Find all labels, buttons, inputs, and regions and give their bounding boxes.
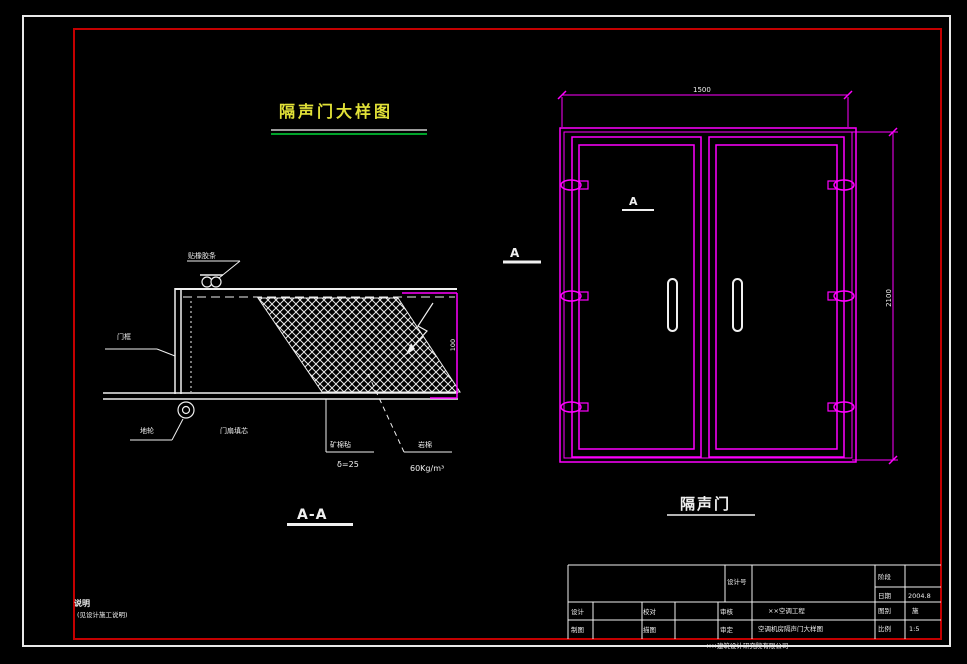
width-dimension: 1500 — [558, 86, 852, 127]
trace-label: 描图 — [643, 625, 656, 634]
height-dim-text: 2100 — [885, 289, 893, 307]
section-marker-leaf: A — [629, 195, 638, 208]
project-line2: 空调机房隔声门大样图 — [758, 624, 823, 633]
approve-label: 审定 — [720, 625, 734, 634]
door-elevation: 1500 2100 A A 隔声门 — [503, 86, 898, 515]
wheel-label-leader — [172, 419, 183, 440]
door-handle-left-icon — [668, 279, 677, 331]
infill-density-label: 60Kg/m³ — [410, 464, 444, 473]
outer-white-border — [23, 16, 950, 646]
leaf-label: 门扇填芯 — [220, 426, 248, 435]
floor-wheel-inner-icon — [183, 407, 190, 414]
type-label: 图别 — [878, 606, 891, 615]
sheet-frame — [23, 16, 950, 646]
drawing-title: 隔声门大样图 — [271, 102, 427, 134]
date-label: 日期 — [878, 592, 892, 600]
design-label: 设计 — [571, 607, 585, 616]
cad-viewport: 隔声门大样图 — [0, 0, 967, 664]
elevation-caption: 隔声门 — [680, 495, 731, 513]
absorber-thickness-label: δ=25 — [337, 460, 359, 469]
scale-value: 1:5 — [909, 625, 919, 633]
thickness-dim-text: 100 — [449, 339, 457, 351]
section-caption: A-A — [297, 507, 327, 523]
page-title: 隔声门大样图 — [279, 102, 393, 121]
notes-heading: 说明 — [74, 598, 90, 608]
frame-label-leader — [157, 349, 175, 356]
review-label: 审核 — [720, 607, 734, 616]
right-leaf-inner — [716, 145, 837, 449]
notes-body: (见设计施工说明) — [77, 610, 128, 619]
footer-institute-text: ××建筑设计研究院有限公司 — [706, 641, 788, 650]
door-outer-frame-inner — [564, 132, 852, 458]
section-view: 100 贴橡胶条 门框 地轮 门扇填芯 矿棉毡 δ=25 岩棉 60Kg/m³ … — [103, 251, 460, 526]
section-marker-outside: A — [510, 246, 520, 260]
stage-label: 阶段 — [878, 572, 892, 581]
left-leaf-outer — [572, 137, 701, 457]
date-value: 2004.8 — [908, 592, 931, 600]
project-line1: ××空调工程 — [768, 606, 805, 615]
floor-wheel-outer-icon — [178, 402, 194, 418]
top-label: 贴橡胶条 — [188, 251, 216, 260]
frame-label: 门框 — [117, 332, 131, 341]
absorber-name-label: 矿棉毡 — [330, 440, 351, 449]
roller-wheel-right-icon — [211, 277, 221, 287]
door-handle-right-icon — [733, 279, 742, 331]
title-block: 设计号 阶段 日期 2004.8 设计 校对 审核 ××空调工程 图别 施 制图… — [568, 565, 941, 639]
infill-name-label: 岩棉 — [418, 440, 432, 449]
type-value: 施 — [912, 606, 919, 615]
draft-label: 制图 — [571, 625, 584, 634]
right-hinges — [828, 180, 854, 412]
height-dimension: 2100 — [852, 128, 898, 464]
section-caption-underline — [287, 523, 353, 526]
inner-red-border — [74, 29, 941, 639]
floor-wheel-label: 地轮 — [140, 426, 154, 435]
cad-drawing-canvas: 隔声门大样图 — [0, 0, 967, 664]
left-hinges — [561, 180, 588, 412]
notes-block: 说明 (见设计施工说明) — [74, 598, 128, 619]
right-leaf-outer — [709, 137, 844, 457]
top-label-leader — [219, 261, 240, 278]
check-label: 校对 — [643, 607, 657, 616]
design-no-label: 设计号 — [727, 577, 747, 586]
scale-label: 比例 — [878, 624, 891, 633]
hatch-area — [258, 298, 460, 392]
width-dim-text: 1500 — [693, 86, 711, 94]
door-outer-frame — [560, 128, 856, 462]
